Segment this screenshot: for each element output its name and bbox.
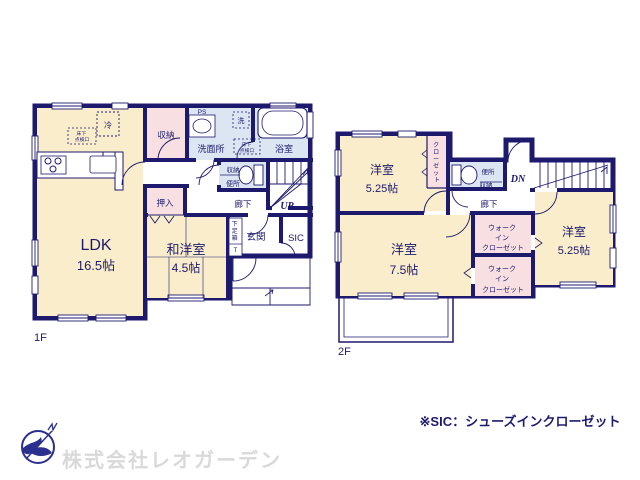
label-floor1: 1F [34, 332, 47, 344]
label-dn: DN [510, 174, 526, 185]
label-toilet: 便所 [226, 179, 240, 188]
label-toilet-2f: 便所 [482, 167, 496, 176]
label-sic: SIC [288, 233, 304, 244]
label-floor2: 2F [338, 346, 351, 358]
label-genkan: 玄関 [246, 231, 265, 243]
balcony [339, 298, 453, 342]
label-up: UP [280, 201, 294, 212]
label-hall-1f: 廊下 [234, 199, 252, 209]
shoe-box: 下 足 箱 T [229, 218, 242, 256]
entrance-porch [232, 258, 310, 305]
label-hall-2f: 廊下 [480, 199, 498, 209]
label-bath: 浴室 [275, 143, 293, 154]
label-bed1: 洋室 [370, 162, 394, 177]
company-logo-icon [14, 419, 62, 471]
label-bed2: 洋室 [391, 242, 417, 257]
sic-footnote: ※SIC：シューズインクローゼット [404, 411, 636, 430]
laundry-label: 洗 [238, 116, 245, 125]
label-bed3-size: 5.25帖 [558, 244, 590, 257]
floorplan-page: 冷 床下 点検口 PS 洗 床下 点検口 [0, 0, 640, 480]
room-ldk [37, 108, 143, 316]
label-bed1-size: 5.25帖 [366, 182, 398, 195]
label-storage-top: 収納 [157, 130, 174, 140]
label-bed2-size: 7.5帖 [390, 262, 419, 277]
floor1-plan: 冷 床下 点検口 PS 洗 床下 点検口 [25, 95, 335, 355]
label-oshiire: 押入 [156, 198, 174, 208]
label-washitsu: 和洋室 [166, 242, 205, 257]
label-toilet-storage: 収納 [227, 165, 240, 174]
label-washitsu-size: 4.5帖 [172, 260, 201, 275]
label-senmenjo: 洗面所 [197, 143, 224, 154]
sink-icon [90, 156, 116, 173]
label-ldk-size: 16.5帖 [77, 258, 115, 273]
label-bed3: 洋室 [562, 224, 586, 239]
label-ldk: LDK [80, 237, 111, 254]
floor2-plan: 洋室 5.25帖 ク ロ ー ゼ ッ ト 便所 収納 DN 廊下 洋室 5.25… [330, 125, 640, 365]
underfloor-hatch-label: 床下 点検口 [75, 130, 90, 143]
label-storage-2f: 収納 [480, 180, 493, 189]
fridge-label: 冷 [104, 120, 112, 130]
toilet-icon [254, 165, 263, 185]
bathtub-icon [258, 108, 307, 138]
company-name: 株式会社レオガーデン [62, 444, 282, 473]
toilet-icon-2f [452, 165, 461, 185]
